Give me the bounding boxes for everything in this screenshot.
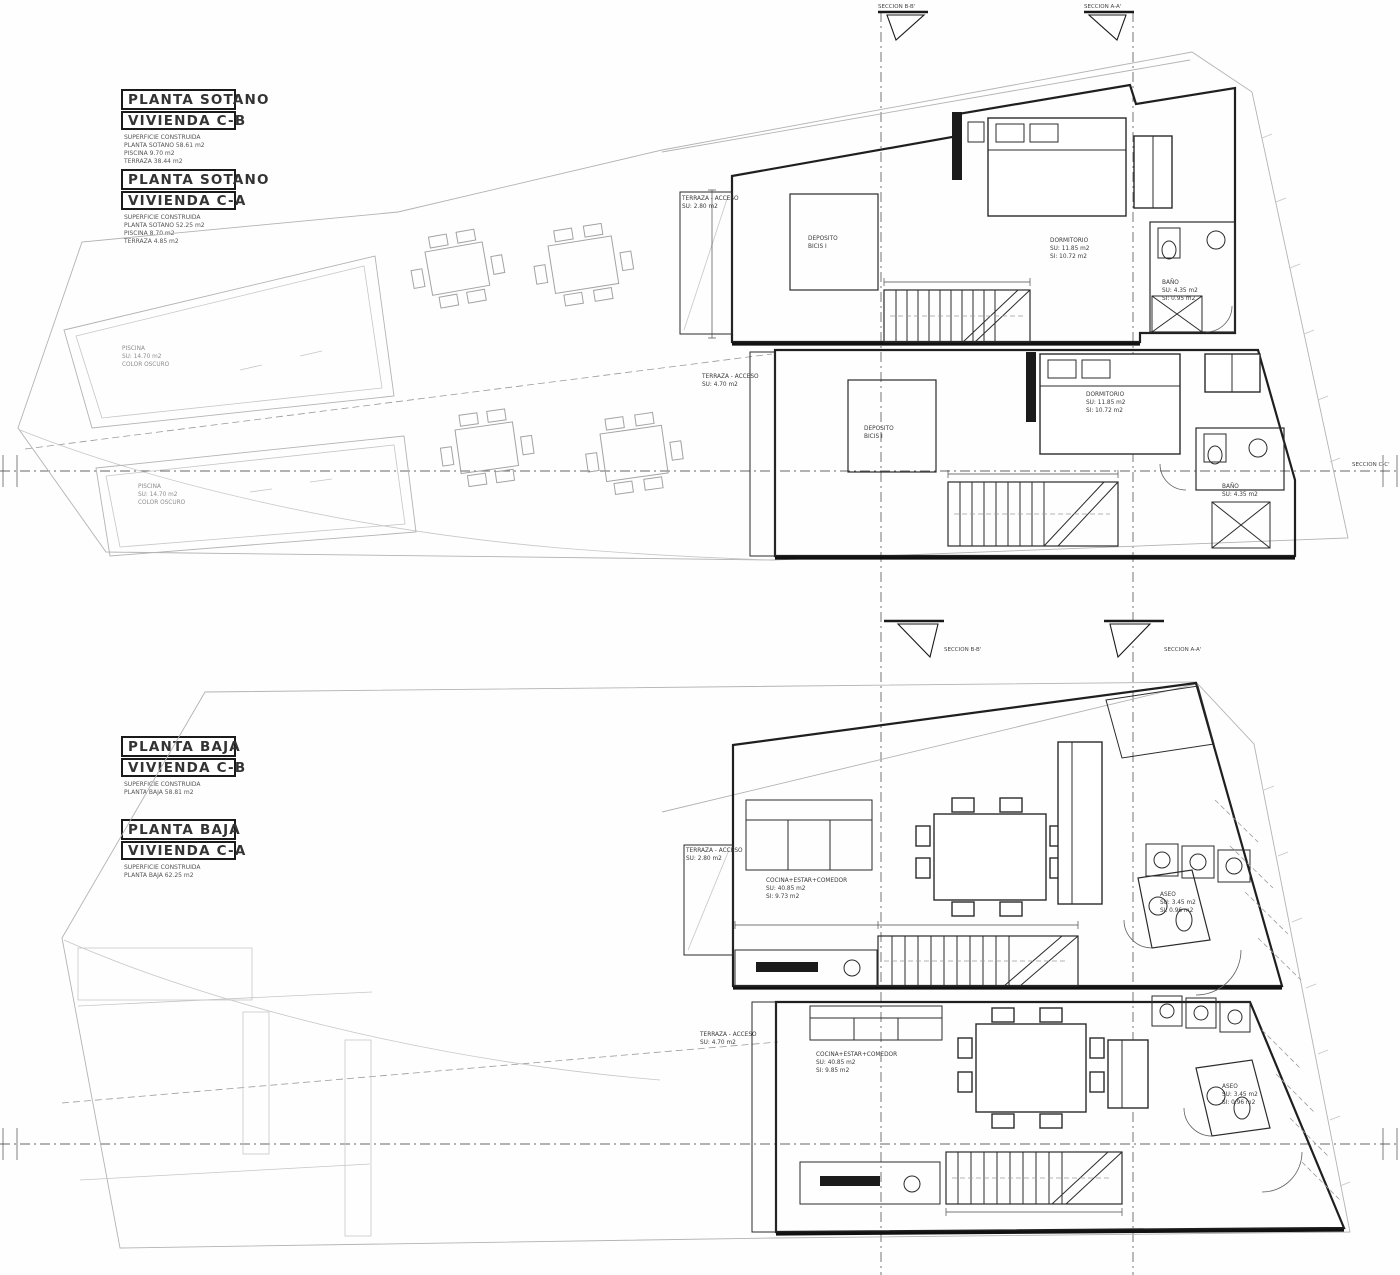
- fence-ticks-sotano: [1262, 134, 1340, 462]
- deposito-room: DEPOSITO BICIS I: [790, 194, 878, 290]
- kitchen-island: [735, 950, 877, 986]
- deposito-room: DEPOSITO BICIS I: [848, 380, 936, 472]
- deposito-label: DEPOSITO: [808, 236, 838, 242]
- aseo-label: SI: 0.96 m2: [1222, 1100, 1256, 1106]
- section-cc-label: SECCION C-C': [1352, 462, 1390, 468]
- header-title: PLANTA SOTANO: [128, 92, 270, 108]
- header-detail: PLANTA SOTANO 52.25 m2: [124, 222, 205, 229]
- aseo-label: SU: 3.45 m2: [1222, 1092, 1258, 1098]
- section-flag-bb-top: [878, 12, 928, 40]
- garden-paving: [78, 948, 372, 1236]
- header-baja-ca: PLANTA BAJA VIVIENDA C-A SUPERFICIE CONS…: [122, 820, 247, 879]
- bedroom-label: DORMITORIO: [1050, 238, 1089, 244]
- bathroom-label: SU: 4.35 m2: [1222, 492, 1258, 498]
- deposito-label: BICIS I: [864, 434, 883, 440]
- terrace-label: SU: 4.70 m2: [702, 382, 738, 388]
- site-boundary-baja: [62, 682, 1350, 1248]
- terrace-label: TERRAZA - ACCESO: [701, 374, 759, 380]
- unit-sotano-ca: TERRAZA - ACCESO SU: 4.70 m2 DEPOSITO BI…: [701, 350, 1295, 558]
- bedroom-label: SU: 11.85 m2: [1086, 400, 1126, 406]
- pool-label: COLOR OSCURO: [122, 362, 170, 368]
- header-subtitle: VIVIENDA C-A: [128, 843, 247, 859]
- bathroom-label: SU: 4.35 m2: [1162, 288, 1198, 294]
- garden-table: [581, 409, 687, 498]
- aseo-label: SI: 0.96 m2: [1160, 908, 1194, 914]
- garden-table: [529, 220, 638, 310]
- section-aa-top-label: SECCION A-A': [1084, 4, 1121, 10]
- header-detail: PLANTA SOTANO 58.61 m2: [124, 142, 205, 149]
- sofa: [746, 800, 872, 870]
- aseo-label: ASEO: [1160, 892, 1176, 898]
- kitchen-label: COCINA+ESTAR+COMEDOR: [766, 878, 847, 884]
- bedroom-label: SI: 10.72 m2: [1086, 408, 1123, 414]
- aseo-label: ASEO: [1222, 1084, 1238, 1090]
- section-bb-mid-label: SECCION B-B': [944, 647, 981, 653]
- header-detail: TERRAZA 38.44 m2: [123, 158, 183, 165]
- header-detail: PISCINA 9.70 m2: [124, 150, 175, 157]
- header-subtitle: VIVIENDA C-A: [128, 193, 247, 209]
- terrace-access: TERRAZA - ACCESO SU: 2.80 m2: [684, 845, 743, 955]
- stairs: [878, 936, 1078, 986]
- header-subtitle: VIVIENDA C-B: [128, 760, 246, 776]
- stairs: [884, 278, 1030, 342]
- header-detail: SUPERFICIE CONSTRUIDA: [124, 214, 201, 221]
- header-title: PLANTA BAJA: [128, 739, 241, 755]
- header-sotano-ca: PLANTA SOTANO VIVIENDA C-A SUPERFICIE CO…: [122, 170, 270, 245]
- header-baja-cb: PLANTA BAJA VIVIENDA C-B SUPERFICIE CONS…: [122, 737, 246, 796]
- header-subtitle: VIVIENDA C-B: [128, 113, 246, 129]
- pool-label: PISCINA: [138, 484, 161, 490]
- pool-upper: PISCINA SU: 14.70 m2 COLOR OSCURO: [64, 256, 394, 428]
- unit-sotano-cb: TERRAZA - ACCESO SU: 2.80 m2 DEPOSITO BI…: [680, 85, 1235, 344]
- bathroom-label: BAÑO: [1162, 279, 1179, 286]
- architectural-sheet: SECCION B-B' SECCION A-A' SECCION B-B' S…: [0, 0, 1400, 1275]
- section-bb-top-label: SECCION B-B': [878, 4, 915, 10]
- terrace-label: SU: 4.70 m2: [700, 1040, 736, 1046]
- terrain-contour-baja: [64, 940, 660, 1080]
- bedroom: DORMITORIO SU: 11.85 m2 SI: 10.72 m2: [952, 112, 1172, 260]
- terrace-label: SU: 2.80 m2: [682, 204, 718, 210]
- pool-label: SU: 14.70 m2: [138, 492, 178, 498]
- pool-label: PISCINA: [122, 346, 145, 352]
- header-detail: SUPERFICIE CONSTRUIDA: [124, 864, 201, 871]
- unit-baja-cb: TERRAZA - ACCESO SU: 2.80 m2 COCINA+ESTA…: [684, 683, 1301, 995]
- bathroom: BAÑO SU: 4.35 m2 SI: 0.95 m2: [1150, 222, 1235, 332]
- kitchen-label: SU: 40.85 m2: [816, 1060, 856, 1066]
- terrace-label: SU: 2.80 m2: [686, 856, 722, 862]
- pool-lower: PISCINA SU: 14.70 m2 COLOR OSCURO: [96, 436, 416, 556]
- sofa: [810, 1006, 942, 1040]
- entry-path-hatch: [1262, 1030, 1340, 1200]
- aseo-room: ASEO SU: 3.45 m2 SI: 0.96 m2: [1184, 1060, 1270, 1136]
- dining-table: [958, 1008, 1104, 1128]
- bedroom-label: SU: 11.85 m2: [1050, 246, 1090, 252]
- aseo-room: ASEO SU: 3.45 m2 SI: 0.96 m2: [1124, 870, 1210, 948]
- terrace-access: TERRAZA - ACCESO SU: 2.80 m2: [680, 192, 739, 334]
- section-flag-aa-mid: [1104, 621, 1164, 657]
- deposito-label: DEPOSITO: [864, 426, 894, 432]
- stairs: [946, 1152, 1122, 1216]
- couch: [1108, 1040, 1148, 1108]
- unit-baja-ca: TERRAZA - ACCESO SU: 4.70 m2 COCINA+ESTA…: [699, 996, 1344, 1234]
- header-detail: PLANTA BAJA 58.81 m2: [124, 789, 194, 796]
- stairs: [948, 470, 1118, 546]
- kitchen-counter: [1106, 686, 1250, 882]
- header-detail: SUPERFICIE CONSTRUIDA: [124, 134, 201, 141]
- section-flag-aa-top: [1084, 12, 1134, 40]
- bedroom: DORMITORIO SU: 11.85 m2 SI: 10.72 m2: [1026, 352, 1260, 454]
- dining-table: [916, 798, 1064, 916]
- pool-label: SU: 14.70 m2: [122, 354, 162, 360]
- kitchen-label: SI: 9.73 m2: [766, 894, 800, 900]
- header-detail: PLANTA BAJA 62.25 m2: [124, 872, 194, 879]
- terrace-label: TERRAZA - ACCESO: [699, 1032, 757, 1038]
- kitchen-label: SU: 40.85 m2: [766, 886, 806, 892]
- garden-table: [436, 406, 537, 490]
- terrace-access: TERRAZA - ACCESO SU: 4.70 m2: [701, 352, 775, 556]
- aseo-label: SU: 3.45 m2: [1160, 900, 1196, 906]
- header-title: PLANTA BAJA: [128, 822, 241, 838]
- header-detail: SUPERFICIE CONSTRUIDA: [124, 781, 201, 788]
- kitchen-label: COCINA+ESTAR+COMEDOR: [816, 1052, 897, 1058]
- kitchen-label: SI: 9.85 m2: [816, 1068, 850, 1074]
- entry-path-hatch: [1215, 800, 1301, 980]
- bathroom-label: BAÑO: [1222, 483, 1239, 490]
- terrace-access: TERRAZA - ACCESO SU: 4.70 m2: [699, 1002, 776, 1232]
- kitchen-island: [800, 1162, 940, 1204]
- floor-plan-drawing: SECCION B-B' SECCION A-A' SECCION B-B' S…: [0, 0, 1400, 1275]
- header-detail: TERRAZA 4.85 m2: [123, 238, 179, 245]
- section-aa-mid-label: SECCION A-A': [1164, 647, 1201, 653]
- section-line-end-ticks: [3, 455, 1397, 1160]
- bedroom-label: SI: 10.72 m2: [1050, 254, 1087, 260]
- terrace-label: TERRAZA - ACCESO: [685, 848, 743, 854]
- section-flag-bb-mid: [884, 621, 944, 657]
- planta-baja-plan: TERRAZA - ACCESO SU: 2.80 m2 COCINA+ESTA…: [62, 682, 1350, 1248]
- pool-label: COLOR OSCURO: [138, 500, 186, 506]
- header-title: PLANTA SOTANO: [128, 172, 270, 188]
- bathroom-label: SI: 0.95 m2: [1162, 296, 1196, 302]
- bedroom-label: DORMITORIO: [1086, 392, 1125, 398]
- couch: [1058, 742, 1102, 904]
- terrace-label: TERRAZA - ACCESO: [681, 196, 739, 202]
- deposito-label: BICIS I: [808, 244, 827, 250]
- garden-table: [406, 225, 509, 312]
- header-sotano-cb: PLANTA SOTANO VIVIENDA C-B SUPERFICIE CO…: [122, 90, 270, 165]
